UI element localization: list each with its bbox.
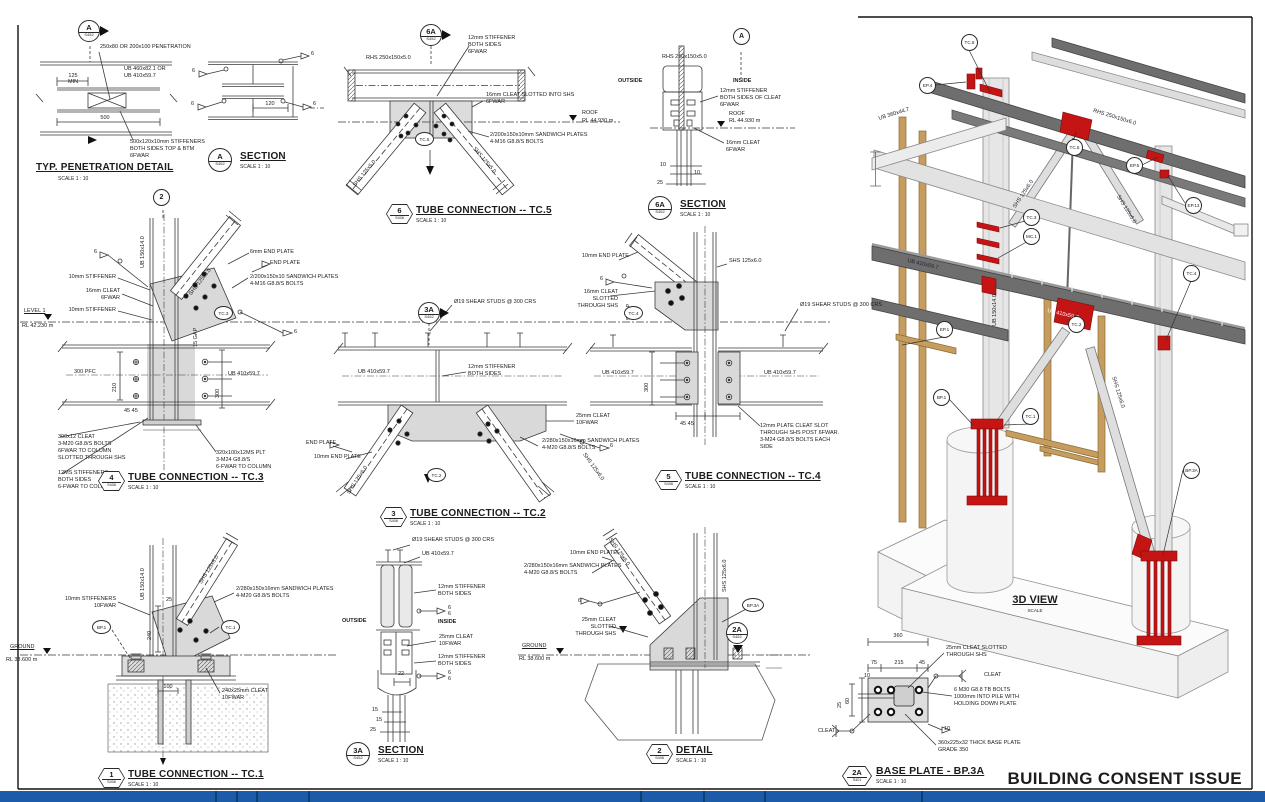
sec3a-title: SECTION xyxy=(378,745,424,756)
tc2-note-cleat: 25mm CLEAT 10FWAR xyxy=(576,413,610,427)
bottom-bar-tick xyxy=(640,791,642,802)
sec6a-note-stiffener: 12mm STIFFENER BOTH SIDES OF CLEAT 6FWAR xyxy=(720,88,781,109)
sec6a-title-badge: 6AS452 xyxy=(648,196,672,220)
det2-note-endplate10: 10mm END PLATE xyxy=(570,550,617,557)
sec6a-cut-tag: A xyxy=(733,28,750,45)
v3d-tag-mc1: MC.1 xyxy=(1023,228,1040,245)
tc5-cut-flag-icon xyxy=(442,30,451,40)
tc3-note-sandwich: 2/200x150x10 SANDWICH PLATES 4-M16 G8.8/… xyxy=(250,274,338,288)
v3d-tag-ep13: EP.13 xyxy=(1185,197,1202,214)
sec3a-drawing xyxy=(376,545,445,742)
sec3a-outside-label: OUTSIDE xyxy=(342,618,366,625)
v3d-tag-bp1: BP.1 xyxy=(933,389,950,406)
bp3a-dim-10b: 10 xyxy=(944,726,950,733)
tc3-level-label: LEVEL 1 xyxy=(24,308,46,315)
det2-ground-rl: RL 38.600 m xyxy=(519,656,550,663)
sec3a-ub-label: UB 410x59.7 xyxy=(422,551,454,558)
bp3a-cleat-left-label: CLEAT xyxy=(818,728,835,735)
tc3-column-label: UB 150x14.0 xyxy=(140,236,147,268)
v3d-member-col: UB 150x14.0 xyxy=(992,294,999,326)
tc3-ub-label: UB 410x59.7 xyxy=(228,371,260,378)
sec3a-title-badge: 3AS452 xyxy=(346,742,370,766)
bp3a-dim-215: 215 xyxy=(886,660,912,667)
bottom-bar-tick xyxy=(764,791,766,802)
tc4-note-cleat: 16mm CLEAT SLOTTED THROUGH SHS xyxy=(560,289,618,310)
bp3a-note-cleat: 25mm CLEAT SLOTTED THROUGH SHS xyxy=(946,645,1007,659)
bp3a-note-plate: 360x225x32 THICK BASE PLATE GRADE 350 xyxy=(938,740,1021,754)
issue-banner: BUILDING CONSENT ISSUE xyxy=(940,769,1242,789)
v3d-tag-tc3: TC.3 xyxy=(1023,209,1040,226)
sec6a-roof-label: ROOF xyxy=(729,111,745,118)
tc4-note-endplate10: 10mm END PLATE xyxy=(582,253,629,260)
bp3a-dim-25: 25 xyxy=(837,702,844,708)
tc2-weld-6: 6 xyxy=(610,443,613,450)
bottom-bar-tick xyxy=(703,791,705,802)
v3d-tag-ep1: EP.1 xyxy=(936,321,953,338)
seca-drawing xyxy=(198,53,324,120)
tc3-note-cleat: 16mm CLEAT 6FWAR xyxy=(66,288,120,302)
sec3a-scale: SCALE 1 : 10 xyxy=(378,758,408,764)
tc4-scale: SCALE 1 : 10 xyxy=(685,484,715,490)
tc4-title: TUBE CONNECTION -- TC.4 xyxy=(685,471,821,482)
tc3-scale: SCALE 1 : 10 xyxy=(128,485,158,491)
tc5-cut-badge: 6AS452 xyxy=(420,24,442,46)
sec3a-note-studs: Ø19 SHEAR STUDS @ 300 CRS xyxy=(412,537,494,544)
sec3a-weld-6: 6 xyxy=(448,676,451,683)
tc4-shs-label: SHS 125x6.0 xyxy=(729,258,761,265)
tc5-drawing xyxy=(338,46,620,195)
tc3-title: TUBE CONNECTION -- TC.3 xyxy=(128,472,264,483)
sec6a-rhs-label: RHS 250x150x5.0 xyxy=(662,54,707,61)
tc5-scale: SCALE 1 : 10 xyxy=(416,218,446,224)
v3d-title: 3D VIEW xyxy=(1000,594,1070,606)
tc4-note-plate-cleat: 12mm PLATE CLEAT SLOT THROUGH SHS POST 6… xyxy=(760,423,839,451)
sec3a-dim-15: 15 xyxy=(376,717,382,724)
det2-bp-tag: BP.3A xyxy=(742,598,764,612)
tc5-note-stiffener: 12mm STIFFENER BOTH SIDES 6FWAR xyxy=(468,35,515,56)
bottom-bar xyxy=(0,791,1265,802)
tc5-roof-label: ROOF xyxy=(582,110,598,117)
tc2-cut-badge: 3AS452 xyxy=(418,302,440,324)
v3d-tag-tc6: TC.6 xyxy=(961,34,978,51)
bp3a-scale: SCALE 1 : 10 xyxy=(876,779,906,785)
tc3-weld-6: 6 xyxy=(294,329,297,336)
bottom-bar-tick xyxy=(215,791,217,802)
det2-note-cleat: 25mm CLEAT SLOTTED THROUGH SHS xyxy=(556,617,616,638)
sec3a-note-cleat: 25mm CLEAT 10FWAR xyxy=(439,634,473,648)
tc2-title: TUBE CONNECTION -- TC.2 xyxy=(410,508,546,519)
det2-cut-badge: 2AS452 xyxy=(726,622,748,644)
tc1-note-sandwich: 2/280x150x16mm SANDWICH PLATES 4-M20 G8.… xyxy=(236,586,333,600)
tc2-scale: SCALE 1 : 10 xyxy=(410,521,440,527)
tc1-ground-label: GROUND xyxy=(10,644,34,651)
tc1-tag: TC.1 xyxy=(221,620,240,634)
v3d-tag-tc4: TC.4 xyxy=(1183,265,1200,282)
sec6a-dim-10: 10 xyxy=(660,162,666,169)
sec6a-inside-label: INSIDE xyxy=(733,78,751,85)
tc2-cut-flag-icon xyxy=(440,308,449,318)
tc3-note-plt: 320x100x12MS PLT 3-M24 G8.8/S 6-FWAR TO … xyxy=(216,450,271,471)
tc2-note-studs: Ø19 SHEAR STUDS @ 300 CRS xyxy=(454,299,536,306)
seca-scale: SCALE 1 : 10 xyxy=(240,164,270,170)
sec3a-inside-label: INSIDE xyxy=(438,619,456,626)
sec3a-dim-25: 25 xyxy=(370,727,376,734)
tc3-dim-45: 45 45 xyxy=(124,408,138,415)
seca-weld-6: 6 xyxy=(192,68,195,75)
tc5-note-cleat: 16mm CLEAT SLOTTED INTO SHS 6FWAR xyxy=(486,92,574,106)
tc2-note-stiffener: 12mm STIFFENER BOTH SIDES xyxy=(468,364,515,378)
tc1-ground-rl: RL 38.600 m xyxy=(6,657,37,664)
seca-title: SECTION xyxy=(240,151,286,162)
tc1-dim-240: 240 xyxy=(147,631,154,640)
sec3a-weld-6: 6 xyxy=(448,611,451,618)
linework xyxy=(0,0,1265,802)
tc4-ub-right-label: UB 410x59.7 xyxy=(764,370,796,377)
tc1-scale: SCALE 1 : 10 xyxy=(128,782,158,788)
tc1-note-cleat: 240x25mm CLEAT 10FWAR xyxy=(222,688,268,702)
pen-note-penetration: 250x80 OR 200x100 PENETRATION xyxy=(100,44,191,51)
tc4-weld-6: 6 xyxy=(600,276,603,283)
det2-scale: SCALE 1 : 10 xyxy=(676,758,706,764)
bp3a-dim-360: 360 xyxy=(883,633,913,640)
bp3a-dim-60: 60 xyxy=(845,698,852,704)
tc3-tag: TC.3 xyxy=(214,306,233,320)
det2-column-label: SHS 125x6.0 xyxy=(722,560,729,592)
pen-dim-min: MIN xyxy=(62,79,84,86)
tc3-note-stiffener-b: 10mm STIFFENER xyxy=(58,307,116,314)
seca-weld-6: 6 xyxy=(191,101,194,108)
tc1-note-stiffeners: 10mm STIFFENERS 10FWAR xyxy=(62,596,116,610)
v3d-tag-ep5: EP.5 xyxy=(1126,157,1143,174)
drawing-sheet: AS452 250x80 OR 200x100 PENETRATION UB 4… xyxy=(0,0,1265,802)
tc4-dim-45: 45 45 xyxy=(680,421,694,428)
tc4-dim-300: 300 xyxy=(644,383,651,392)
tc3-dim-300: 300 xyxy=(215,389,222,398)
v3d-tag-bp3a: BP.3A xyxy=(1183,462,1200,479)
bp3a-cleat-right-label: CLEAT xyxy=(984,672,1001,679)
tc5-tag: TC.5 xyxy=(415,132,434,146)
tc2-drawing xyxy=(330,305,609,502)
sec3a-dim-22: 22 xyxy=(398,671,404,678)
seca-weld-6: 6 xyxy=(311,51,314,58)
tc5-note-sandwich: 2/200x150x10mm SANDWICH PLATES 4-M16 G8.… xyxy=(490,132,587,146)
bp3a-dim-10: 10 xyxy=(864,673,870,680)
tc5-roof-rl: RL 44.930 m xyxy=(582,118,613,125)
tc4-ub-left-label: UB 410x59.7 xyxy=(602,370,634,377)
sec3a-note-stiffener-b: 12mm STIFFENER BOTH SIDES xyxy=(438,654,485,668)
v3d-tag-tc1: TC.1 xyxy=(1022,408,1039,425)
tc3-dim-210: 210 xyxy=(112,383,119,392)
bottom-bar-tick xyxy=(308,791,310,802)
tc3-level-rl: RL 42.230 m xyxy=(22,323,53,330)
bottom-bar-tick xyxy=(256,791,258,802)
seca-dim-120: 120 xyxy=(256,101,284,108)
sec6a-dim-10: 10 xyxy=(694,170,700,177)
pen-note-beam: UB 460x82.1 OR UB 410x59.7 xyxy=(124,66,166,80)
tc1-bp-tag: BP.1 xyxy=(92,620,111,634)
pen-note-stiffeners: 500x120x10mm STIFFENERS BOTH SIDES TOP &… xyxy=(130,139,205,160)
sec6a-scale: SCALE 1 : 10 xyxy=(680,212,710,218)
det2-note-sandwich: 2/280x150x16mm SANDWICH PLATES 4-M20 G8.… xyxy=(524,563,621,577)
tc3-note-cleat300: 300x12 CLEAT 3-M20 G8.8/S BOLTS 6FWAR TO… xyxy=(58,434,125,462)
tc1-drawing xyxy=(43,533,268,765)
pen-drawing xyxy=(36,46,177,144)
det2-title: DETAIL xyxy=(676,745,713,756)
pen-cut-flag-icon xyxy=(100,26,109,36)
pen-title: TYP. PENETRATION DETAIL xyxy=(36,162,173,173)
tc4-tag: TC.4 xyxy=(624,306,643,320)
tc3-note-stiffener-a: 10mm STIFFENER xyxy=(58,274,116,281)
bp3a-note-bolts: 6 M30 G8.8 TB BOLTS 1000mm INTO PILE WIT… xyxy=(954,687,1019,708)
sec6a-title: SECTION xyxy=(680,199,726,210)
sec3a-dim-15: 15 xyxy=(372,707,378,714)
tc3-note-endplate6: 6mm END PLATE xyxy=(250,249,294,256)
tc2-ub-label: UB 410x59.7 xyxy=(358,369,390,376)
sec6a-drawing xyxy=(650,46,795,186)
tc2-note-sandwich: 2/280x150x16mm SANDWICH PLATES 4-M20 G8.… xyxy=(542,438,639,452)
tc3-pfc-label: 300 PFC xyxy=(74,369,96,376)
tc5-rhs-label: RHS 250x150x5.0 xyxy=(366,55,411,62)
tc1-dim-100: 100 xyxy=(156,684,180,691)
v3d-scale: SCALE xyxy=(1000,608,1070,613)
v3d-tag-tc2: TC.2 xyxy=(1068,316,1085,333)
sec6a-roof-rl: RL 44.930 m xyxy=(729,118,760,125)
tc1-dim-25: 25 xyxy=(166,597,172,604)
seca-title-badge: AS452 xyxy=(208,148,232,172)
tc1-column-label: UB 150x14.0 xyxy=(140,568,147,600)
pen-cut-badge: AS452 xyxy=(78,20,100,42)
v3d-tag-ep4: EP.4 xyxy=(919,77,936,94)
tc3-dim-gap: 15 GAP xyxy=(193,328,200,347)
pen-scale: SCALE 1 : 10 xyxy=(58,176,88,182)
sec6a-note-cleat: 16mm CLEAT 6FWAR xyxy=(726,140,760,154)
bottom-bar-tick xyxy=(236,791,238,802)
tc2-tag: TC.2 xyxy=(427,468,446,482)
pen-dim-500: 500 xyxy=(90,115,120,122)
bp3a-dim-75: 75 xyxy=(866,660,882,667)
seca-weld-6: 6 xyxy=(313,101,316,108)
det2-ground-label: GROUND xyxy=(522,643,546,650)
v3d-tag-tc5: TC.5 xyxy=(1066,139,1083,156)
bottom-bar-tick xyxy=(921,791,923,802)
tc5-title: TUBE CONNECTION -- TC.5 xyxy=(416,205,552,216)
sec3a-note-stiffener-a: 12mm STIFFENER BOTH SIDES xyxy=(438,584,485,598)
tc2-note-endplate10: 10mm END PLATE xyxy=(314,454,361,461)
bp3a-dim-45: 45 xyxy=(914,660,930,667)
sec6a-outside-label: OUTSIDE xyxy=(618,78,642,85)
tc4-note-studs: Ø19 SHEAR STUDS @ 300 CRS xyxy=(800,302,882,309)
tc3-weld-6: 6 xyxy=(94,249,97,256)
tc3-cut-tag: 2 xyxy=(153,189,170,206)
tc1-title: TUBE CONNECTION -- TC.1 xyxy=(128,769,264,780)
tc3-note-endplate: END PLATE xyxy=(270,260,300,267)
tc2-note-endplate: END PLATE xyxy=(306,440,336,447)
det2-weld-6: 6 xyxy=(578,598,581,605)
sec6a-dim-25: 25 xyxy=(657,180,663,187)
